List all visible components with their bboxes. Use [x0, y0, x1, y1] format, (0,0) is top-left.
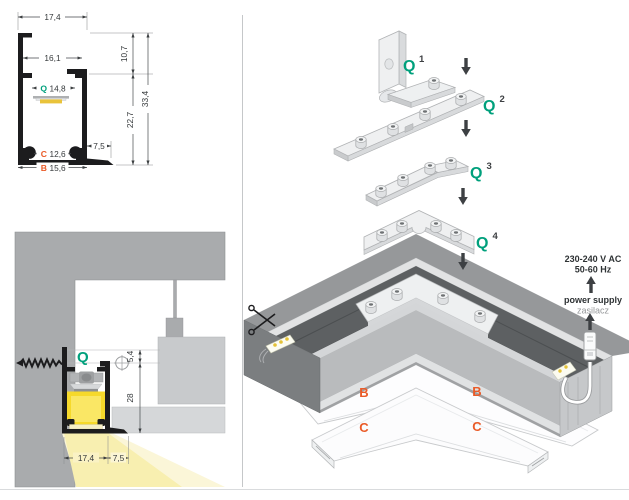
frequency-label: 50-60 Hz — [575, 265, 612, 275]
dim-inner-width: 16,1 — [23, 53, 82, 64]
dim-label: 33,4 — [140, 91, 150, 108]
part-q3-angle-connector — [366, 158, 468, 207]
q4-sup: 4 — [493, 231, 499, 242]
dim-label: 12,6 — [50, 149, 67, 159]
panel-divider — [242, 15, 243, 487]
dim-flange: 7,5 — [87, 141, 111, 151]
dim-label: 15,6 — [50, 163, 67, 173]
q1-label: Q — [403, 58, 415, 75]
c-label-right: C — [472, 419, 482, 434]
dim-upper-height: 10,7 — [119, 33, 133, 74]
dim-c-width: C 12,6 — [34, 149, 71, 160]
dim-label: 17,4 — [78, 453, 95, 463]
dim-q-slot: Q 14,8 — [32, 83, 75, 94]
diffuser — [70, 425, 103, 430]
hanger-bracket — [166, 318, 183, 337]
assembly-drawing: Q 1 Q 2 Q 3 Q 4 B B C C 230-240 V AC 50-… — [240, 0, 629, 500]
q4-label: Q — [476, 235, 488, 252]
plasterboard — [112, 407, 225, 433]
profile-installation-diagram: 17,4 16,1 Q 14,8 7,5 C 12,6 — [0, 0, 629, 500]
dim-label: 7,5 — [93, 141, 105, 151]
power-supply-label-pl: zasilacz — [577, 306, 610, 316]
dim-offset: 5,4 — [125, 350, 140, 363]
down-arrow-icon — [461, 120, 471, 137]
led-tape — [40, 99, 62, 103]
down-arrow-icon — [458, 188, 468, 205]
cross-section-drawing: 17,4 16,1 Q 14,8 7,5 C 12,6 — [0, 0, 175, 190]
dim-label: 5,4 — [125, 350, 135, 362]
mounting-flange — [87, 159, 114, 166]
q3-sup: 3 — [487, 161, 492, 172]
dim-lower-height: 22,7 — [125, 74, 138, 165]
b-label: B — [41, 163, 47, 173]
dim-label: 14,8 — [50, 84, 67, 94]
dim-label: 17,4 — [44, 12, 61, 22]
q2-label: Q — [483, 98, 495, 115]
voltage-label: 230-240 V AC — [565, 254, 622, 264]
q1-sup: 1 — [419, 54, 425, 65]
c-label-left: C — [359, 420, 369, 435]
b-label-left: B — [359, 385, 368, 400]
up-arrow-icon — [586, 276, 596, 293]
down-arrow-icon — [461, 58, 471, 75]
dim-label: 7,5 — [113, 453, 125, 463]
dim-gap: 7,5 — [108, 453, 129, 464]
q3-label: Q — [470, 165, 482, 182]
q-label: Q — [77, 349, 89, 366]
dim-top-width: 17,4 — [18, 12, 87, 23]
bottom-border — [0, 489, 629, 490]
ceiling-frame — [158, 337, 225, 404]
part-q1-bracket — [378, 31, 455, 108]
q-label: Q — [40, 84, 47, 94]
dim-label: 28 — [125, 393, 135, 403]
q2-sup: 2 — [500, 94, 505, 105]
dim-label: 16,1 — [44, 53, 61, 63]
c-label: C — [41, 149, 47, 159]
dim-label: 22,7 — [125, 112, 135, 129]
power-supply-label: power supply — [564, 295, 622, 305]
b-label-right: B — [472, 384, 481, 399]
hanger-rod — [174, 280, 177, 318]
dim-label: 10,7 — [119, 46, 129, 63]
dim-total-height: 33,4 — [140, 33, 153, 165]
installation-drawing: Q 5,4 28 17,4 7,5 — [0, 230, 240, 500]
led-strip — [33, 96, 69, 103]
